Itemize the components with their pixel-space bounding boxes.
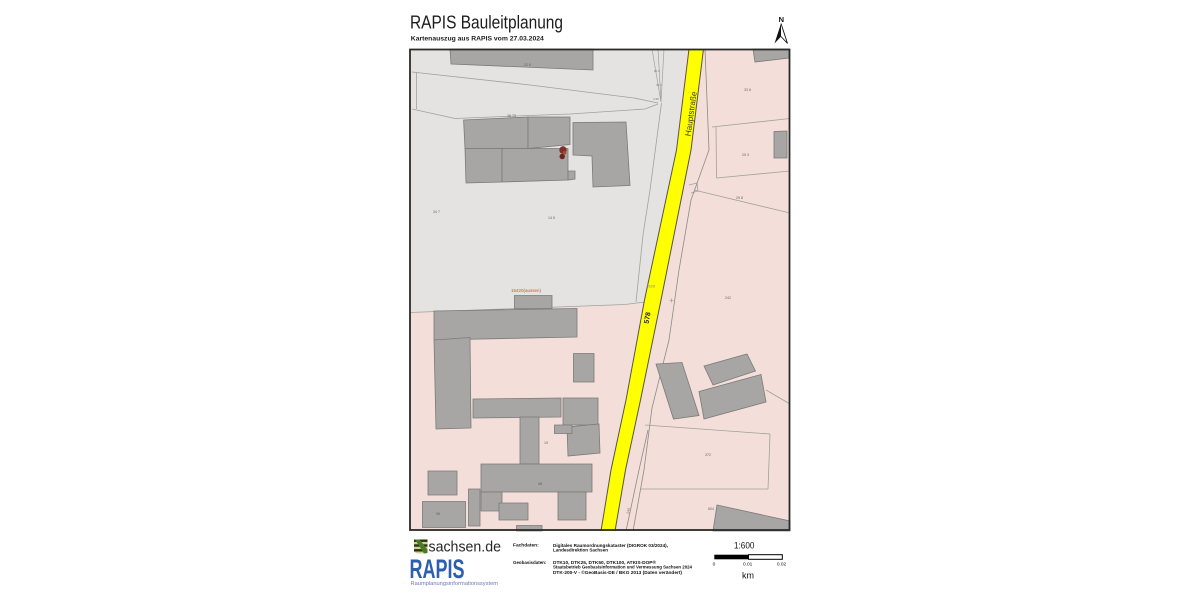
svg-text:32 1: 32 1	[656, 83, 662, 87]
svg-text:14 5: 14 5	[548, 216, 555, 220]
svg-text:29 8: 29 8	[736, 196, 743, 200]
svg-text:Geobasisdaten:: Geobasisdaten:	[513, 560, 547, 566]
svg-text:492/8: 492/8	[647, 285, 656, 289]
svg-text:0: 0	[713, 561, 716, 567]
svg-text:4 95: 4 95	[653, 97, 659, 101]
svg-text:RAPIS Bauleitplanung: RAPIS Bauleitplanung	[410, 11, 563, 32]
svg-text:372: 372	[705, 453, 711, 457]
svg-text:Raumplanungsinformationssystem: Raumplanungsinformationssystem	[411, 581, 499, 587]
svg-text:km: km	[742, 570, 754, 580]
svg-text:49: 49	[538, 482, 542, 486]
svg-text:19: 19	[544, 441, 548, 445]
svg-text:58: 58	[436, 512, 440, 516]
svg-text:1:600: 1:600	[734, 540, 755, 550]
svg-text:N: N	[779, 15, 784, 24]
svg-text:sachsen.de: sachsen.de	[429, 539, 502, 556]
svg-text:604: 604	[708, 507, 714, 511]
svg-text:Staatsbetrieb Geobasisinformat: Staatsbetrieb Geobasisinformation und Ve…	[553, 565, 692, 571]
svg-text:29 3: 29 3	[742, 153, 749, 157]
svg-text:33 6: 33 6	[744, 88, 751, 92]
svg-text:34 7: 34 7	[433, 210, 440, 214]
svg-text:Landesdirektion Sachsen: Landesdirektion Sachsen	[553, 548, 608, 554]
svg-text:22 6: 22 6	[524, 63, 531, 67]
svg-text:36 73: 36 73	[507, 114, 516, 118]
svg-text:Fachdaten:: Fachdaten:	[513, 543, 539, 549]
svg-text:62 b: 62 b	[654, 69, 660, 73]
svg-text:15420(aussen): 15420(aussen)	[511, 288, 542, 293]
svg-text:0.01: 0.01	[743, 561, 753, 567]
svg-text:0.02: 0.02	[777, 561, 787, 567]
svg-text:DTK-200-V - ©GeoBasis-DE / BKG: DTK-200-V - ©GeoBasis-DE / BKG 2013 (Dat…	[553, 569, 682, 576]
svg-text:Kartenauszug aus RAPIS vom 27.: Kartenauszug aus RAPIS vom 27.03.2024	[411, 36, 544, 43]
svg-text:242: 242	[725, 296, 731, 300]
svg-text:RAPIS: RAPIS	[410, 554, 465, 584]
